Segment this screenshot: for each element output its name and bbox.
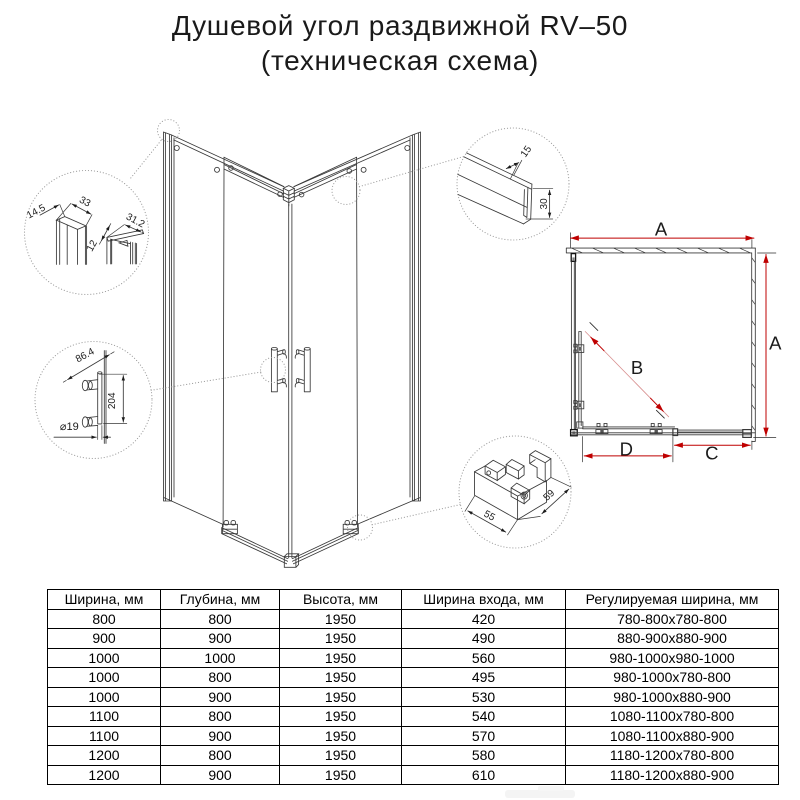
- svg-text:A: A: [769, 332, 782, 353]
- svg-text:59: 59: [542, 488, 558, 504]
- svg-text:14.5: 14.5: [25, 202, 48, 221]
- svg-text:C: C: [705, 443, 718, 464]
- svg-text:B: B: [631, 357, 643, 378]
- svg-text:⌀19: ⌀19: [60, 421, 79, 433]
- svg-text:86.4: 86.4: [74, 346, 97, 365]
- svg-text:204: 204: [107, 392, 118, 409]
- svg-text:12: 12: [85, 238, 100, 253]
- svg-text:55: 55: [482, 509, 497, 524]
- svg-text:D: D: [620, 438, 633, 459]
- svg-text:30: 30: [539, 198, 550, 210]
- svg-text:15: 15: [519, 144, 535, 160]
- svg-text:A: A: [655, 218, 668, 239]
- svg-text:31.2: 31.2: [124, 212, 147, 231]
